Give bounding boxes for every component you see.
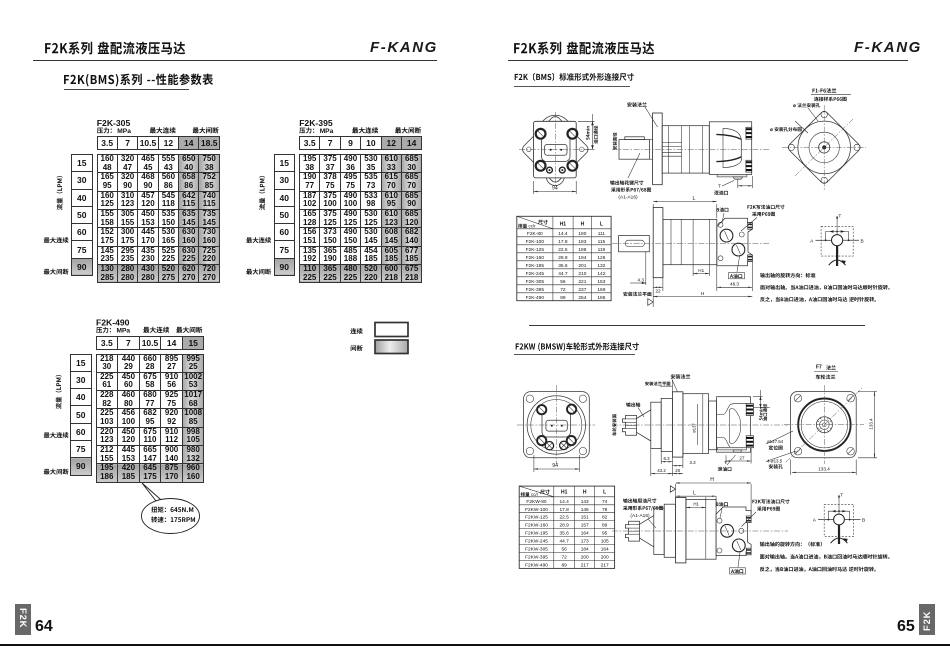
svg-text:164: 164 <box>601 547 609 553</box>
svg-text:(A1-A16): (A1-A16) <box>630 513 650 519</box>
svg-text:146: 146 <box>581 507 589 513</box>
svg-text:184: 184 <box>581 547 589 553</box>
svg-text:173: 173 <box>581 539 589 545</box>
svg-text:94: 94 <box>552 463 558 469</box>
svg-text:89: 89 <box>562 562 568 568</box>
svg-text:F2K-395: F2K-395 <box>526 287 545 293</box>
svg-text:F2K-305: F2K-305 <box>526 279 545 285</box>
svg-text:132: 132 <box>597 263 605 269</box>
svg-text:200: 200 <box>581 554 589 560</box>
svg-text:157: 157 <box>581 523 589 529</box>
svg-text:H: H <box>583 490 587 496</box>
svg-text:142: 142 <box>597 271 605 277</box>
svg-text:T: T <box>718 184 721 190</box>
svg-text:L: L <box>693 491 696 497</box>
svg-text:F2K-125: F2K-125 <box>526 247 545 253</box>
svg-text:35.6: 35.6 <box>560 531 570 537</box>
svg-text:cc/r: cc/r <box>531 492 539 497</box>
svg-text:F2KW-125: F2KW-125 <box>525 515 548 521</box>
svg-text:217: 217 <box>581 562 589 568</box>
svg-text:F2KW-100: F2KW-100 <box>525 507 548 513</box>
svg-text:20: 20 <box>675 468 680 473</box>
svg-text:T: T <box>840 493 843 499</box>
svg-text:ø137: ø137 <box>692 423 697 433</box>
svg-text:L: L <box>603 490 606 496</box>
svg-text:F2KW-395: F2KW-395 <box>525 554 548 560</box>
svg-text:194: 194 <box>578 255 586 261</box>
svg-text:56: 56 <box>562 547 568 553</box>
svg-text:F2K-160: F2K-160 <box>526 255 545 261</box>
svg-text:153: 153 <box>597 279 605 285</box>
svg-text:H1: H1 <box>698 268 704 273</box>
svg-text:F2K-490: F2K-490 <box>96 318 130 328</box>
svg-text:164: 164 <box>581 531 589 537</box>
svg-text:94: 94 <box>552 186 558 192</box>
svg-text:186: 186 <box>597 295 605 301</box>
svg-text:151: 151 <box>581 515 589 521</box>
svg-text:cc/r: cc/r <box>529 224 537 229</box>
svg-text:4-ø13.5: 4-ø13.5 <box>767 459 783 464</box>
svg-text:T: T <box>724 460 727 465</box>
svg-text:27: 27 <box>740 456 745 461</box>
svg-text:A: A <box>813 518 817 524</box>
svg-text:F2KW-490: F2KW-490 <box>525 562 548 568</box>
svg-text:95: 95 <box>602 531 608 537</box>
svg-text:210: 210 <box>578 271 586 277</box>
svg-text:188: 188 <box>578 247 586 253</box>
svg-text:143: 143 <box>581 499 589 505</box>
svg-text:78: 78 <box>602 507 608 513</box>
svg-text:MPa: MPa <box>320 128 334 135</box>
svg-text:MPa: MPa <box>117 128 131 135</box>
svg-text:H: H <box>581 221 585 227</box>
svg-text:A: A <box>810 238 814 244</box>
svg-text:ø147.64: ø147.64 <box>767 439 784 444</box>
svg-text:28.9: 28.9 <box>560 523 570 529</box>
svg-text:F2K-395: F2K-395 <box>299 118 333 128</box>
svg-text:H: H <box>710 477 714 483</box>
svg-text:(A1-A16): (A1-A16) <box>618 195 638 201</box>
svg-text:B: B <box>862 518 865 524</box>
svg-text:119: 119 <box>598 247 606 253</box>
svg-text:T: T <box>838 214 841 220</box>
svg-text:F2KW-245: F2KW-245 <box>525 539 548 545</box>
svg-text:22.5: 22.5 <box>558 247 568 253</box>
svg-text:F2KW-305: F2KW-305 <box>525 547 548 553</box>
svg-text:82: 82 <box>602 515 608 521</box>
svg-text:H: H <box>701 291 705 297</box>
svg-text:72: 72 <box>562 554 568 560</box>
svg-text:22: 22 <box>655 288 661 293</box>
svg-text:4.3: 4.3 <box>638 278 645 283</box>
svg-text:44.7: 44.7 <box>560 539 570 545</box>
svg-text:H1: H1 <box>560 221 567 227</box>
svg-text:14.4: 14.4 <box>560 499 570 505</box>
svg-text:89: 89 <box>602 523 608 529</box>
svg-text:28.9: 28.9 <box>558 255 568 261</box>
svg-text:L: L <box>693 196 696 202</box>
svg-text:H1: H1 <box>693 502 699 507</box>
svg-text:F2KW-80: F2KW-80 <box>526 499 547 505</box>
svg-text:F2K-80: F2K-80 <box>527 231 543 237</box>
svg-text:B: B <box>861 238 864 244</box>
svg-text:17.8: 17.8 <box>558 239 568 245</box>
svg-text:221: 221 <box>578 279 586 285</box>
svg-text:43.2: 43.2 <box>657 468 666 473</box>
svg-text:MPa: MPa <box>117 327 131 334</box>
svg-text:72: 72 <box>560 287 566 293</box>
svg-text:22.5: 22.5 <box>560 515 570 521</box>
svg-text:201: 201 <box>578 263 586 269</box>
svg-text:F2K-195: F2K-195 <box>526 263 545 269</box>
svg-text:F2KW-160: F2KW-160 <box>525 523 548 529</box>
svg-text:F2KW-195: F2KW-195 <box>525 531 548 537</box>
svg-text:L: L <box>600 221 603 227</box>
svg-text:169: 169 <box>597 287 605 293</box>
svg-text:56: 56 <box>560 279 566 285</box>
svg-text:254: 254 <box>578 295 586 301</box>
svg-text:F7: F7 <box>816 365 822 371</box>
svg-text:F2K-245: F2K-245 <box>526 271 545 277</box>
svg-text:6.3: 6.3 <box>663 456 670 461</box>
svg-text:133.4: 133.4 <box>868 418 873 430</box>
svg-text:14.4: 14.4 <box>558 231 568 237</box>
svg-text:44.7: 44.7 <box>558 271 568 277</box>
svg-text:F2K-490: F2K-490 <box>526 295 545 301</box>
svg-text:F2K-305: F2K-305 <box>97 118 131 128</box>
svg-text:3.3: 3.3 <box>690 460 697 465</box>
svg-text:217: 217 <box>601 562 609 568</box>
svg-text:133.4: 133.4 <box>818 467 830 472</box>
svg-text:111: 111 <box>598 231 606 237</box>
svg-text:F2K-100: F2K-100 <box>526 239 545 245</box>
svg-text:115: 115 <box>598 239 606 245</box>
svg-text:89: 89 <box>560 295 566 301</box>
svg-text:183: 183 <box>578 239 586 245</box>
svg-text:74: 74 <box>602 499 608 505</box>
svg-text:48.3: 48.3 <box>730 282 739 287</box>
svg-text:180: 180 <box>578 231 586 237</box>
svg-text:237: 237 <box>578 287 586 293</box>
svg-text:35.6: 35.6 <box>558 263 568 269</box>
svg-text:200: 200 <box>601 554 609 560</box>
svg-text:17.8: 17.8 <box>560 507 570 513</box>
svg-text:H1: H1 <box>561 490 568 496</box>
svg-text:126: 126 <box>597 255 605 261</box>
svg-text:105: 105 <box>601 539 609 545</box>
